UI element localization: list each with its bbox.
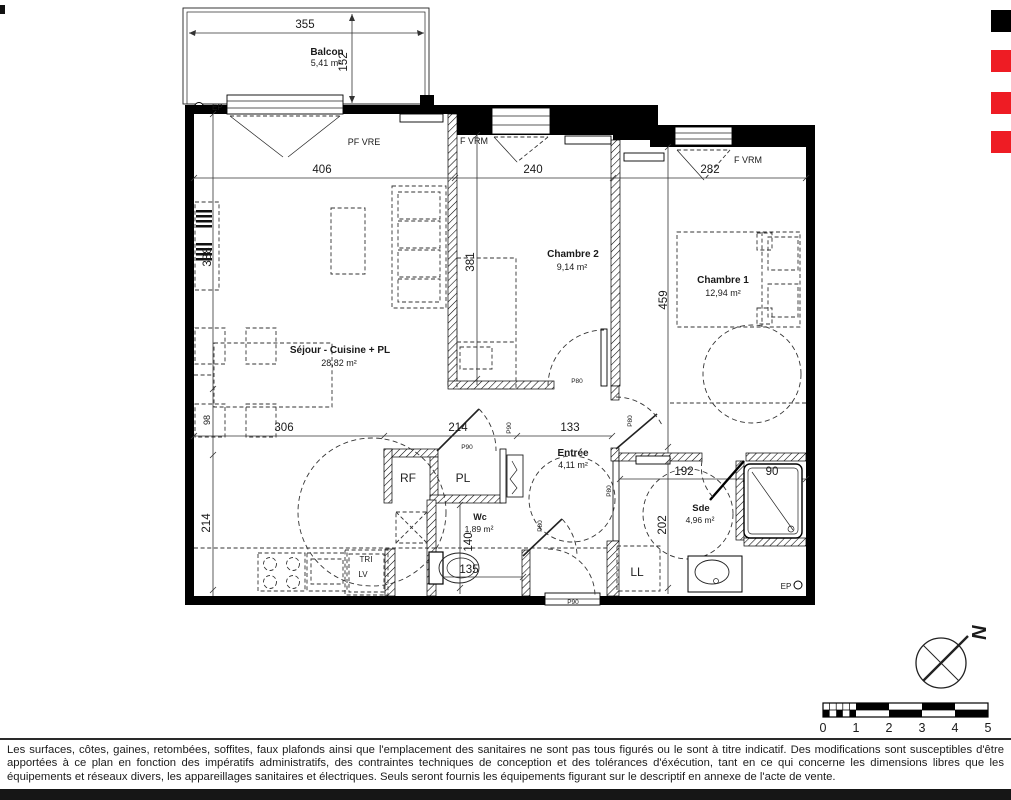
dim-355: 355 [295,19,314,31]
wall-vent [565,136,611,144]
balcony-area: 5,41 m² [311,58,342,68]
sde-drain-label: EP [781,582,792,591]
dim-214-left: 214 [201,513,213,533]
dim-192: 192 [674,466,693,478]
fridge-label: RF [400,471,416,485]
rainwater-drain-icon [794,581,802,589]
door-label-p80: P80 [537,520,544,532]
dim-282: 282 [700,164,719,176]
scale-2: 2 [886,721,893,735]
corner-mark [0,5,5,14]
print-mark-red [991,131,1011,153]
lv-label: LV [358,570,368,579]
dim-381: 381 [465,252,477,271]
bottom-bar [0,789,1011,800]
sejour-name: Séjour - Cuisine + PL [290,345,390,356]
wc-name: Wc [473,512,487,522]
chambre2-name: Chambre 2 [547,249,599,260]
door-label-p90: P90 [567,599,579,606]
dim-214-mid: 214 [448,422,468,434]
entree-name: Entrée [557,448,589,459]
scale-5: 5 [985,721,992,735]
washbasin [688,556,742,592]
electrical-panel [507,455,523,497]
floor-plan-svg: EP Balcon 5,41 m² 355 152 PF VRE F VRM F… [0,0,1011,738]
wall-vent [624,153,664,161]
print-mark-black [991,10,1011,32]
window-label-f-vrm: F VRM [734,155,762,165]
sde-area: 4,96 m² [686,515,715,525]
window-label-pf-vre: PF VRE [348,137,381,147]
north-letter: N [967,625,989,640]
tri-label: TRI [360,555,373,564]
scale-4: 4 [952,721,959,735]
disclaimer-text: Les surfaces, côtes, gaines, retombées, … [7,744,1004,784]
wall-vent [636,456,670,464]
dim-388: 388 [202,247,214,266]
ll-label: LL [630,565,644,579]
balcony-drain-label: EP [212,103,223,112]
scale-0: 0 [820,721,827,735]
dim-306: 306 [274,422,293,434]
scale-1: 1 [853,721,860,735]
footer-divider [0,738,1011,740]
chambre1-name: Chambre 1 [697,275,749,286]
sejour-area: 28,82 m² [321,358,357,368]
dim-140: 140 [463,532,475,551]
dim-98: 98 [202,415,212,425]
closet-label: PL [456,471,471,485]
dim-459: 459 [658,290,670,309]
print-mark-red [991,50,1011,72]
chambre1-area: 12,94 m² [705,288,741,298]
dim-406: 406 [312,164,331,176]
scale-3: 3 [919,721,926,735]
entree-area: 4,11 m² [558,460,588,470]
door-label-p80: P80 [627,415,634,427]
window-label-f-vrm: F VRM [460,136,488,146]
door-label-p90: P90 [461,444,473,451]
dim-90: 90 [766,466,779,478]
floor-plan-page: EP Balcon 5,41 m² 355 152 PF VRE F VRM F… [0,0,1011,800]
dim-135: 135 [459,564,478,576]
print-mark-red [991,92,1011,114]
door-label-p90: P90 [506,422,513,434]
door-label-p80: P80 [606,485,613,497]
wall-vent [400,114,443,122]
dim-240: 240 [523,164,542,176]
sde-name: Sde [692,503,709,514]
dim-202: 202 [657,515,669,534]
chambre2-area: 9,14 m² [557,262,588,272]
door-label-p80: P80 [571,378,583,385]
dim-133: 133 [560,422,579,434]
dim-152: 152 [338,52,350,71]
